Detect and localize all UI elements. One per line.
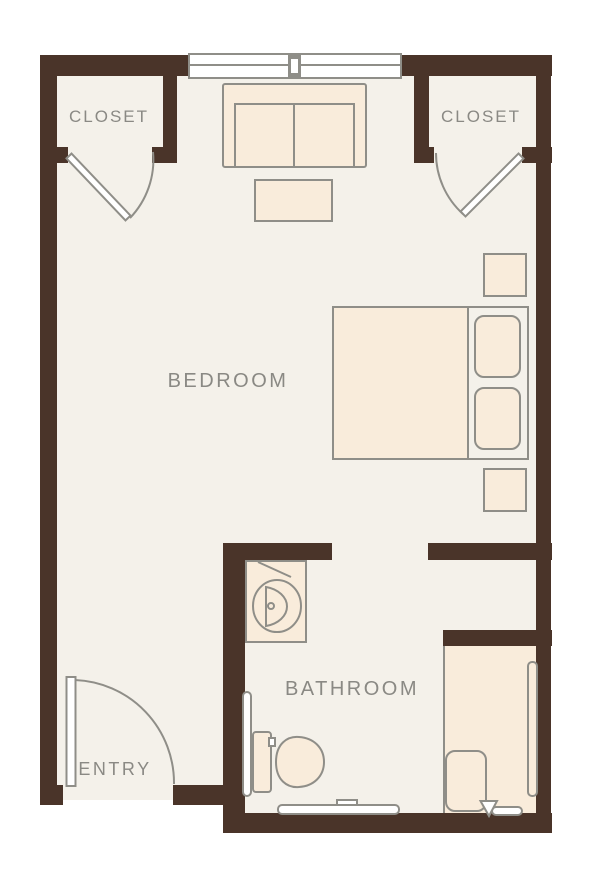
nightstand-lower <box>483 468 527 512</box>
bedroom-label: BEDROOM <box>148 371 308 391</box>
closet-left-label: CLOSET <box>39 108 179 125</box>
wall-shower-top <box>443 630 552 646</box>
shower-bench <box>445 750 487 812</box>
shower-control-bar <box>491 806 523 816</box>
toilet-grab-bar <box>242 691 252 797</box>
sofa-seat-divider <box>293 105 295 166</box>
wall-entry-jamb-left <box>40 785 63 805</box>
wall-right <box>536 55 551 833</box>
nightstand-upper <box>483 253 527 297</box>
wall-divider-right <box>428 543 552 560</box>
toilet-flush-button <box>268 737 276 747</box>
entry-label: ENTRY <box>55 760 175 778</box>
bed-mattress <box>332 306 469 460</box>
coffee-table <box>254 179 333 222</box>
wall-closet-right-jamb-a <box>414 147 434 163</box>
wall-closet-right-jamb-b <box>522 147 552 163</box>
floor-plan: CLOSET CLOSET BEDROOM BATHROOM ENTRY <box>0 0 612 874</box>
towel-bar <box>277 804 400 815</box>
wall-closet-left-jamb-a <box>40 147 68 163</box>
closet-right-label: CLOSET <box>411 108 551 125</box>
bed-pillow-top <box>474 315 521 378</box>
vanity-counter <box>245 560 307 643</box>
wall-entry-right <box>173 785 245 805</box>
wall-left <box>40 55 57 805</box>
wall-closet-left-jamb-b <box>152 147 177 163</box>
bed-pillow-bottom <box>474 387 521 450</box>
window-mullion-inner <box>291 59 298 73</box>
shower-grab-bar <box>527 661 538 797</box>
wall-bathroom-bottom <box>223 813 552 833</box>
bathroom-label: BATHROOM <box>267 679 437 699</box>
